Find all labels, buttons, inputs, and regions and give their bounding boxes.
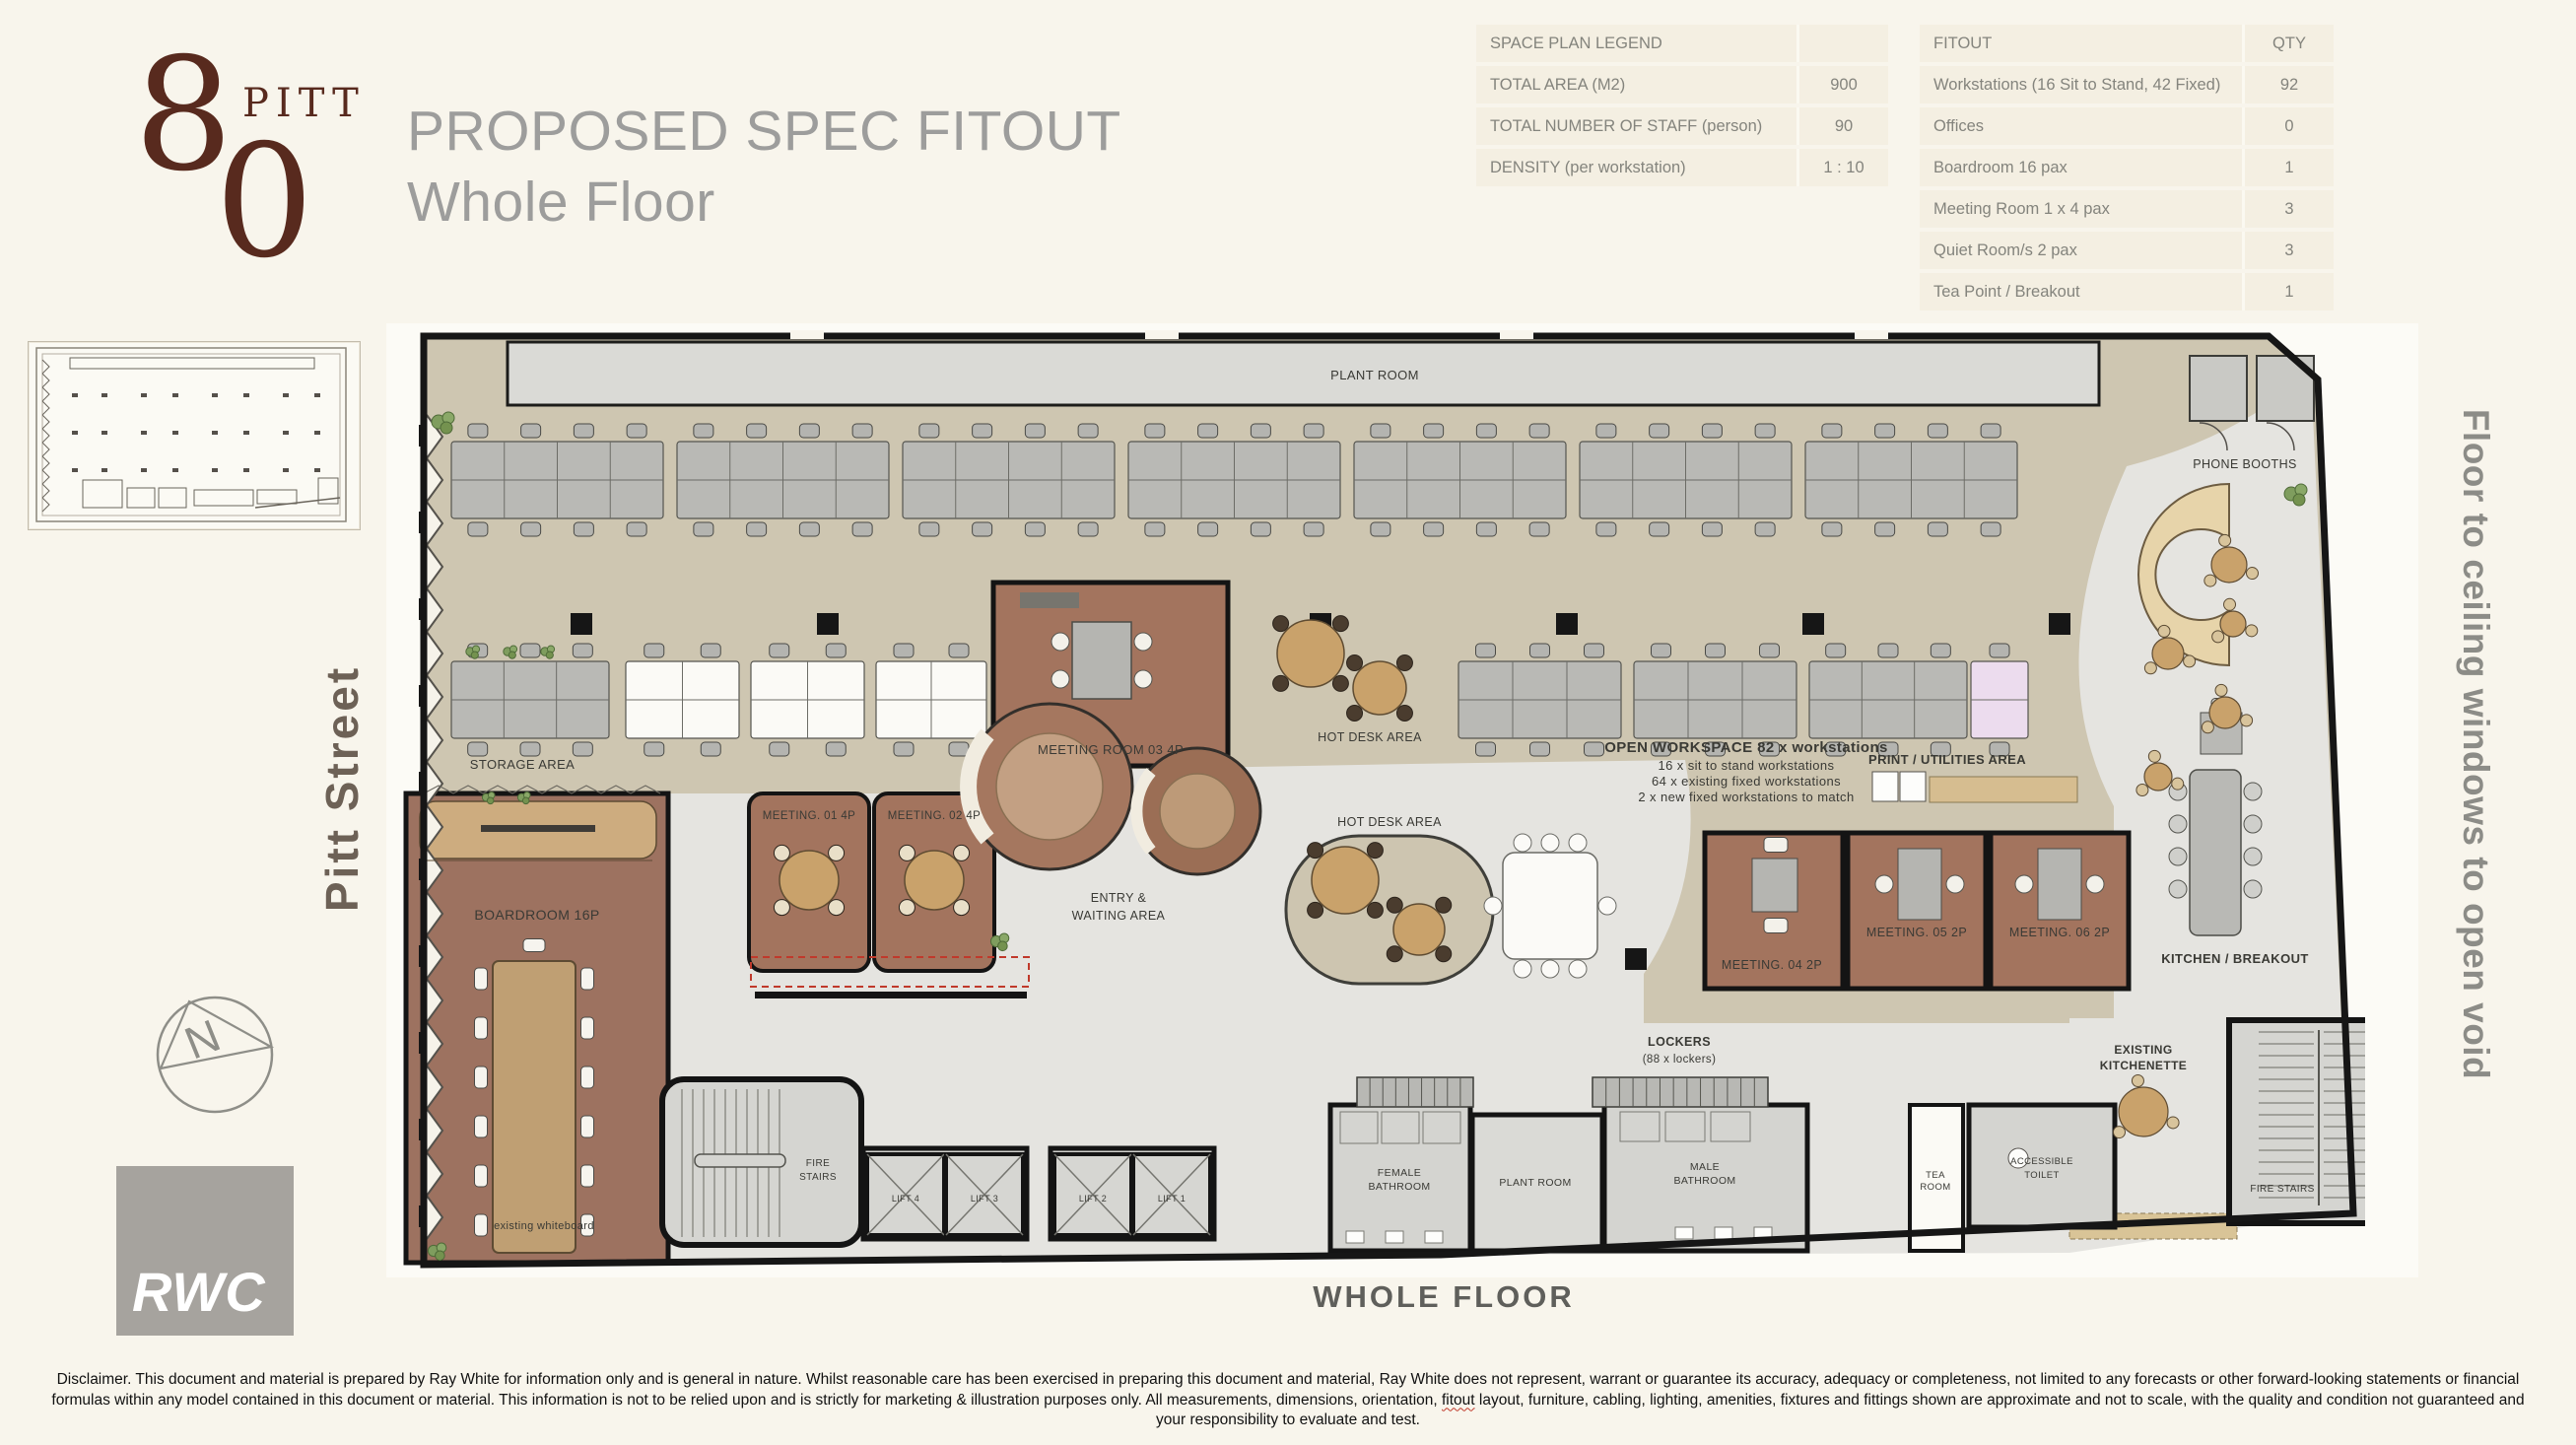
phone-booth: [2190, 356, 2247, 421]
row-qty: 92: [2242, 66, 2334, 103]
window-gap: [1855, 330, 1888, 339]
page-subtitle: Whole Floor: [407, 170, 715, 235]
label-phone-booths: PHONE BOOTHS: [2193, 457, 2297, 471]
label-kitchenette-2: KITCHENETTE: [2100, 1059, 2187, 1072]
row-label: Workstations (16 Sit to Stand, 42 Fixed): [1920, 76, 2242, 95]
printer: [1872, 772, 1898, 801]
label-open-workspace-3: 64 x existing fixed workstations: [1652, 774, 1841, 789]
meeting-05-table: [1898, 849, 1941, 920]
label-accessible-1: ACCESSIBLE: [2010, 1156, 2073, 1167]
logo-digit-0: 0: [215, 124, 314, 280]
label-accessible-2: TOILET: [2024, 1170, 2059, 1181]
row-value: 90: [1796, 107, 1888, 145]
boardroom-table: [493, 961, 576, 1253]
table-header-row: FITOUT QTY: [1920, 25, 2334, 62]
rwc-logo: RWC: [116, 1166, 294, 1336]
table-row: DENSITY (per workstation) 1 : 10: [1476, 149, 1888, 186]
void-window-label: Floor to ceiling windows to open void: [2455, 409, 2496, 1079]
label-entry-1: ENTRY &: [1091, 891, 1147, 905]
label-hot-desk-1: HOT DESK AREA: [1318, 730, 1422, 744]
label-meeting-04: MEETING. 04 2P: [1722, 958, 1822, 972]
meeting-04-table: [1752, 859, 1797, 912]
floor-plan: PLANT ROOM PHONE BOOTHS STORAGE AREA BOA…: [394, 328, 2365, 1274]
disclaimer-fitout-word: fitout: [1442, 1392, 1475, 1409]
mini-floorplan-drawing: [29, 342, 360, 529]
label-existing-whiteboard: existing whiteboard: [494, 1220, 594, 1232]
label-meeting-05: MEETING. 05 2P: [1866, 926, 1967, 939]
label-male-bath-2: BATHROOM: [1673, 1175, 1735, 1187]
label-kitchen-breakout: KITCHEN / BREAKOUT: [2161, 951, 2308, 966]
label-tea-room-2: ROOM: [1920, 1182, 1950, 1193]
meeting-06-table: [2038, 849, 2081, 920]
rwc-logo-text: RWC: [132, 1260, 266, 1324]
label-lift-3: LIFT 3: [971, 1194, 998, 1204]
row-value: 900: [1796, 66, 1888, 103]
legend-header: SPACE PLAN LEGEND: [1476, 34, 1796, 53]
row-label: Quiet Room/s 2 pax: [1920, 241, 2242, 260]
row-label: Boardroom 16 pax: [1920, 159, 2242, 177]
table-row: Quiet Room/s 2 pax 3: [1920, 232, 2334, 269]
logo-word-pitt: PITT: [242, 81, 366, 126]
label-lift-2: LIFT 2: [1079, 1194, 1107, 1204]
kitchen-long-table: [2190, 770, 2241, 935]
label-open-workspace-4: 2 x new fixed workstations to match: [1638, 790, 1854, 804]
row-label: TOTAL AREA (M2): [1476, 76, 1796, 95]
table-row: Offices 0: [1920, 107, 2334, 145]
label-meeting-06: MEETING. 06 2P: [2009, 926, 2110, 939]
meeting-03-credenza: [1020, 592, 1079, 608]
page-title: PROPOSED SPEC FITOUT: [407, 99, 1121, 164]
plan-caption: WHOLE FLOOR: [458, 1279, 2429, 1315]
label-entry-2: WAITING AREA: [1072, 909, 1166, 923]
label-fire-stairs-left-1: FIRE: [806, 1158, 830, 1169]
window-gap: [790, 330, 824, 339]
label-kitchenette-1: EXISTING: [2114, 1043, 2172, 1057]
collab-table-white: [1503, 853, 1597, 959]
boardroom-whiteboard: [481, 825, 595, 832]
row-label: Tea Point / Breakout: [1920, 283, 2242, 302]
table-row: Boardroom 16 pax 1: [1920, 149, 2334, 186]
window-gap: [1145, 330, 1179, 339]
table-header-row: SPACE PLAN LEGEND: [1476, 25, 1888, 62]
row-label: DENSITY (per workstation): [1476, 159, 1796, 177]
corridor-wall-whiteboard: [755, 992, 1027, 998]
row-qty: 3: [2242, 190, 2334, 228]
label-lift-4: LIFT 4: [892, 1194, 919, 1204]
plant-room-top: [508, 342, 2099, 405]
label-lift-1: LIFT 1: [1158, 1194, 1186, 1204]
north-compass-icon: N: [144, 978, 286, 1132]
table-row: Workstations (16 Sit to Stand, 42 Fixed)…: [1920, 66, 2334, 103]
row-label: Meeting Room 1 x 4 pax: [1920, 200, 2242, 219]
label-open-workspace: OPEN WORKSPACE 82 x workstations: [1604, 739, 1888, 756]
label-meeting-02: MEETING. 02 4P: [888, 810, 981, 822]
legend-header-value: [1796, 25, 1888, 62]
disclaimer-text: Disclaimer. This document and material i…: [35, 1370, 2541, 1431]
table-row: Tea Point / Breakout 1: [1920, 273, 2334, 310]
label-boardroom: BOARDROOM 16P: [474, 907, 599, 923]
mini-floorplan-thumbnail: [28, 341, 361, 530]
label-plant-room-bottom: PLANT ROOM: [1499, 1177, 1571, 1189]
fitout-qty-table: FITOUT QTY Workstations (16 Sit to Stand…: [1920, 25, 2334, 314]
entry-rug-small-inner: [1160, 774, 1235, 849]
row-label: TOTAL NUMBER OF STAFF (person): [1476, 117, 1796, 136]
label-print-utilities: PRINT / UTILITIES AREA: [1868, 752, 2026, 767]
row-qty: 1: [2242, 149, 2334, 186]
utilities-cabinet: [1930, 777, 2077, 802]
label-fire-stairs-left-2: STAIRS: [799, 1172, 837, 1183]
printer: [1900, 772, 1926, 801]
space-plan-legend-table: SPACE PLAN LEGEND TOTAL AREA (M2) 900 TO…: [1476, 25, 1888, 190]
street-label: Pitt Street: [315, 665, 369, 912]
fitout-marketing-page: 8 0 PITT PROPOSED SPEC FITOUT Whole Floo…: [0, 0, 2576, 1445]
row-label: Offices: [1920, 117, 2242, 136]
table-row: TOTAL NUMBER OF STAFF (person) 90: [1476, 107, 1888, 145]
row-value: 1 : 10: [1796, 149, 1888, 186]
row-qty: 3: [2242, 232, 2334, 269]
table-row: TOTAL AREA (M2) 900: [1476, 66, 1888, 103]
label-female-bath-2: BATHROOM: [1368, 1181, 1430, 1193]
label-meeting-03: MEETING ROOM 03 4P: [1038, 742, 1184, 757]
qty-header: QTY: [2242, 25, 2334, 62]
label-lockers-count: (88 x lockers): [1643, 1054, 1717, 1066]
building-logo: 8 0 PITT: [116, 47, 412, 333]
window-gap: [1500, 330, 1533, 339]
label-open-workspace-2: 16 x sit to stand workstations: [1659, 758, 1835, 773]
label-storage-area: STORAGE AREA: [470, 757, 575, 772]
fitout-header: FITOUT: [1920, 34, 2242, 53]
label-hot-desk-2: HOT DESK AREA: [1337, 815, 1442, 829]
label-male-bath-1: MALE: [1690, 1161, 1720, 1173]
label-fire-stairs-right: FIRE STAIRS: [2250, 1184, 2314, 1195]
label-plant-room-top: PLANT ROOM: [1330, 368, 1419, 382]
row-qty: 0: [2242, 107, 2334, 145]
row-qty: 1: [2242, 273, 2334, 310]
table-row: Meeting Room 1 x 4 pax 3: [1920, 190, 2334, 228]
label-lockers: LOCKERS: [1648, 1035, 1711, 1049]
label-meeting-01: MEETING. 01 4P: [763, 810, 855, 822]
meeting-03-table: [1072, 622, 1131, 699]
label-female-bath-1: FEMALE: [1378, 1167, 1421, 1179]
label-tea-room-1: TEA: [1926, 1170, 1945, 1181]
